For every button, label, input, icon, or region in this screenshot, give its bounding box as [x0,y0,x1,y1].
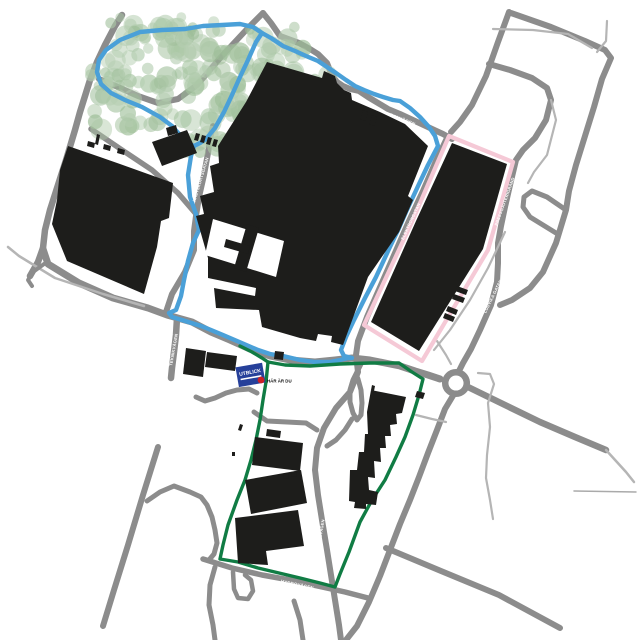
svg-text:HÄR ÄR DU: HÄR ÄR DU [267,379,292,384]
